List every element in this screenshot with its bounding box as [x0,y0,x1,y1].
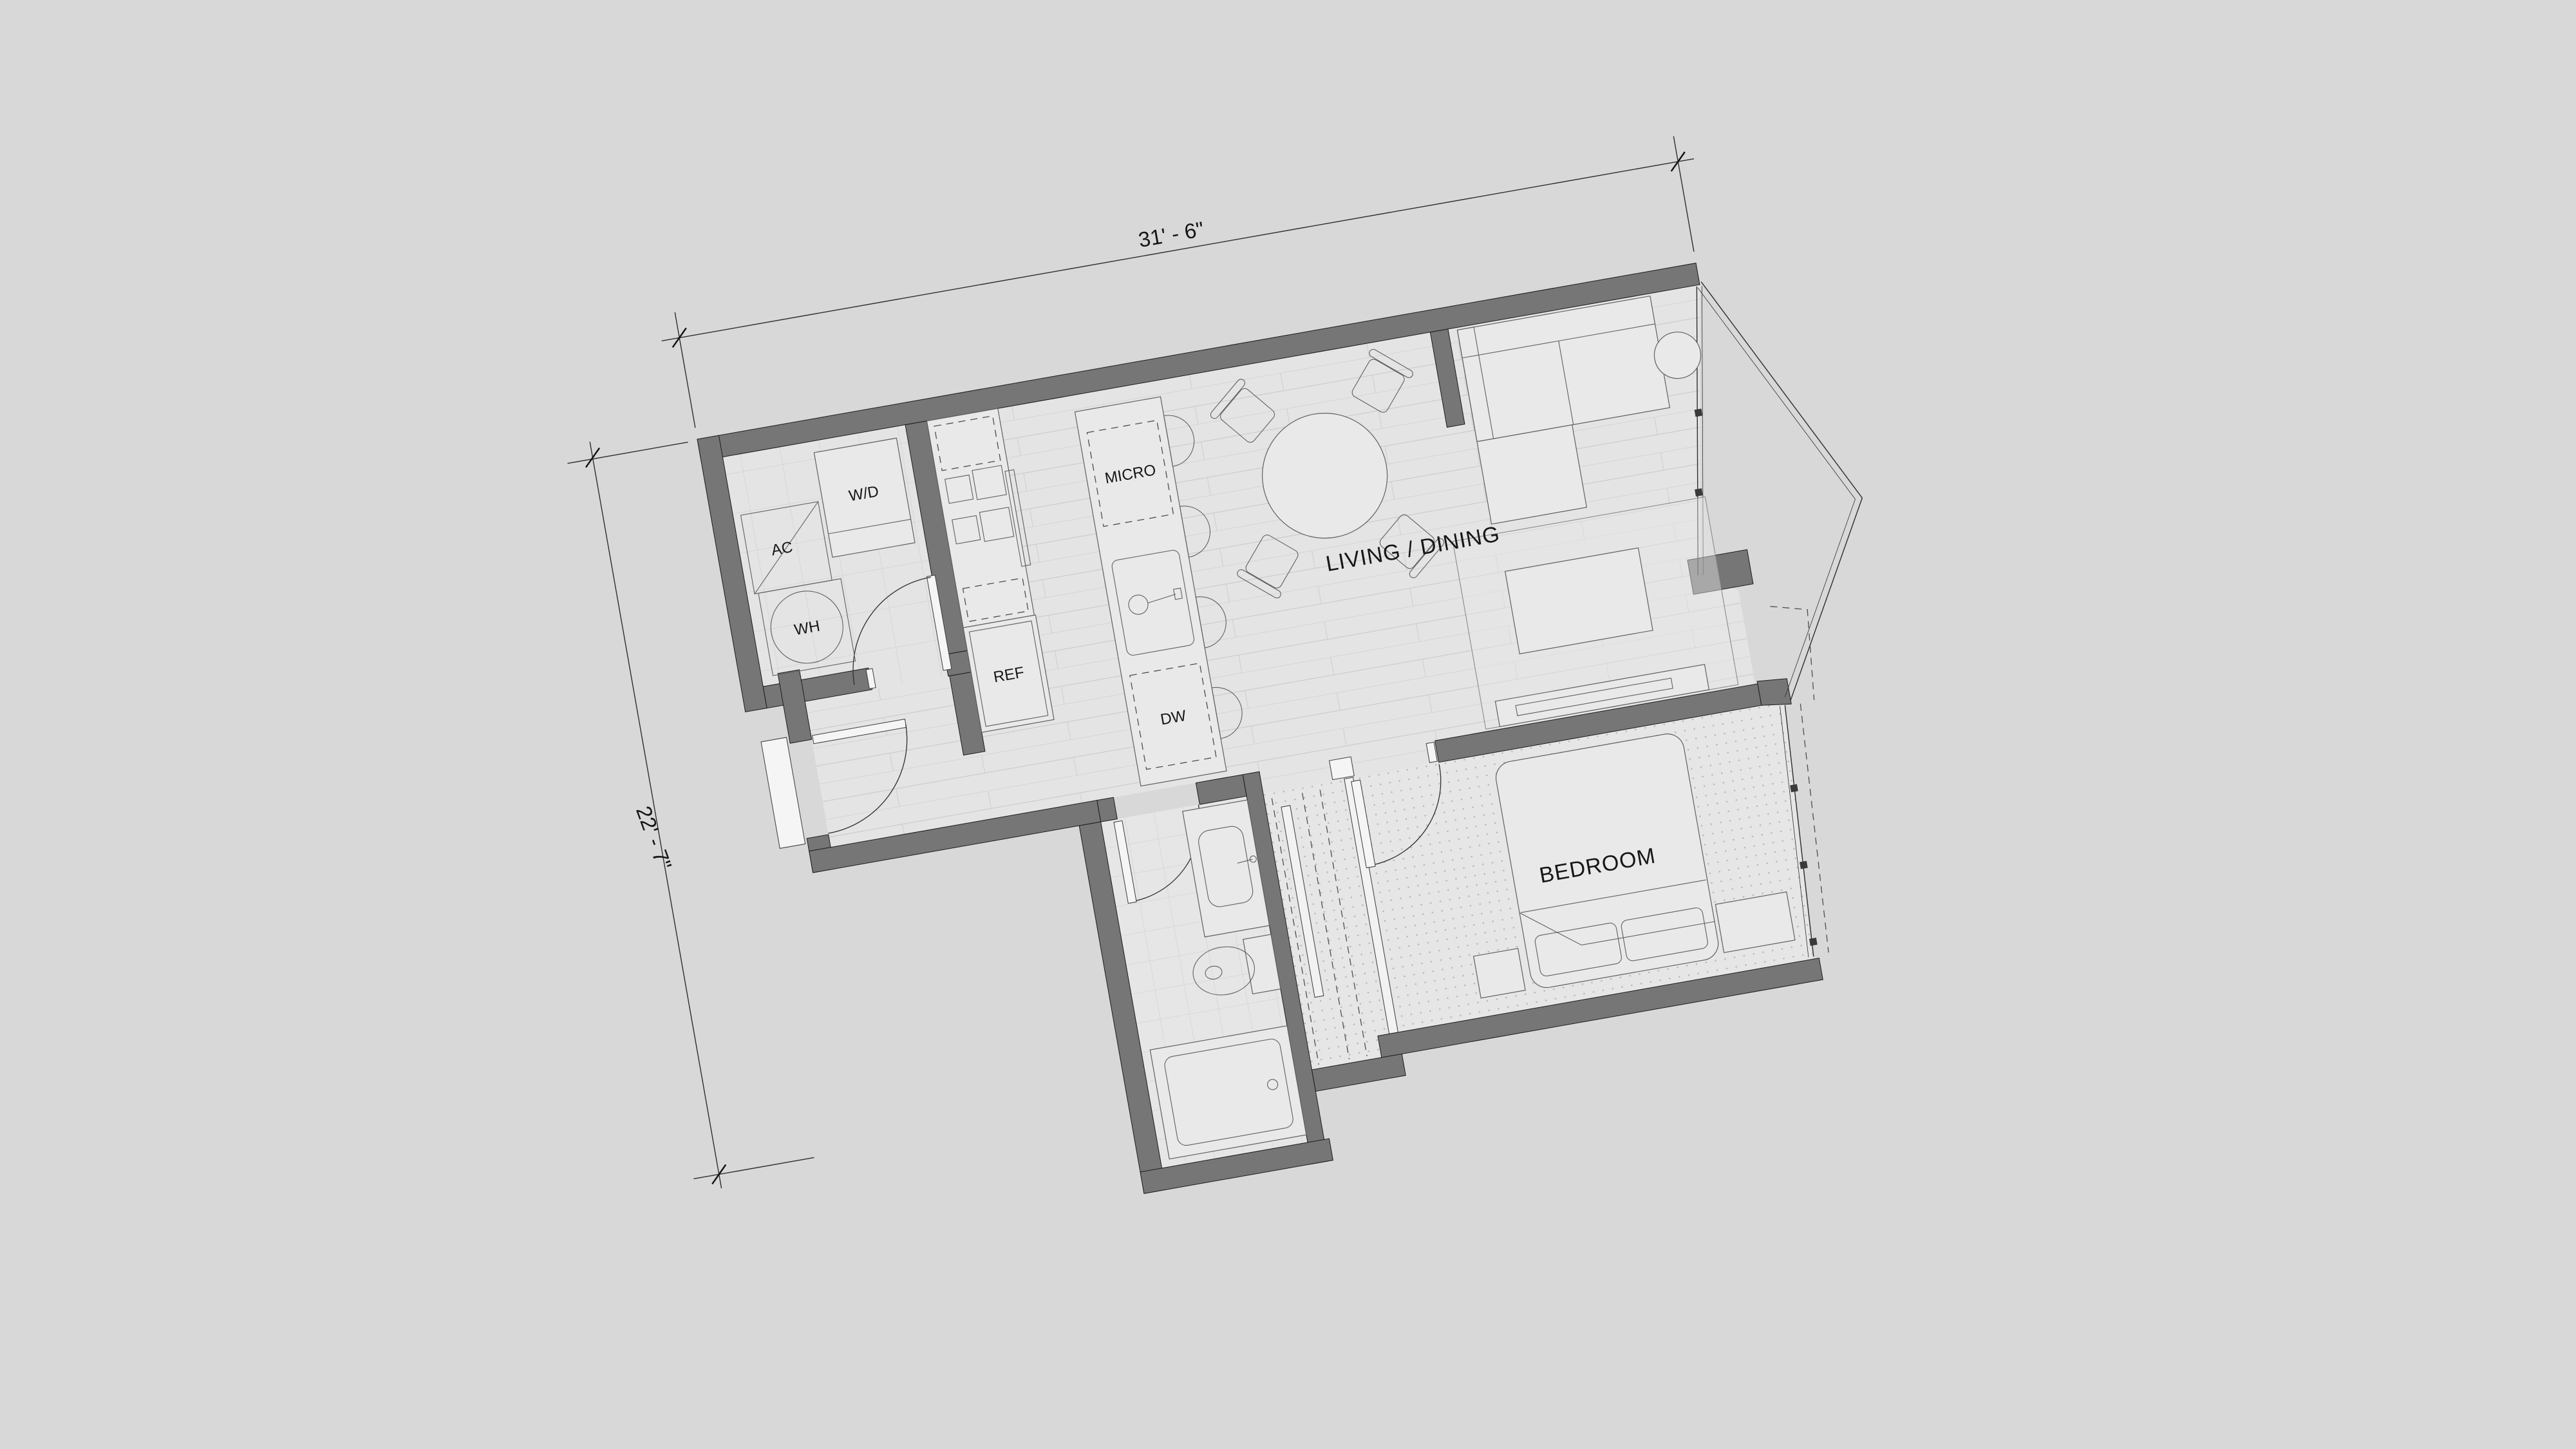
dimension-left-label: 22' - 7" [632,803,677,873]
window-mullion [1809,938,1818,946]
floor-plan: W/D AC WH REF MICRO [526,90,1997,1289]
window-mullion [1790,784,1798,793]
bathtub [1150,1026,1306,1159]
sofa-chaise [1477,425,1586,524]
window-mullion [1695,408,1703,417]
entry-threshold [761,737,805,848]
window-mullion [1800,861,1808,869]
floor-plan-svg: W/D AC WH REF MICRO [526,90,1997,1289]
floor-plan-canvas: { "plan": { "rooms": { "living_dining": … [0,0,2576,1449]
ac-label: AC [770,538,794,559]
nightstand [1474,949,1525,998]
window-mullion [1695,488,1703,497]
